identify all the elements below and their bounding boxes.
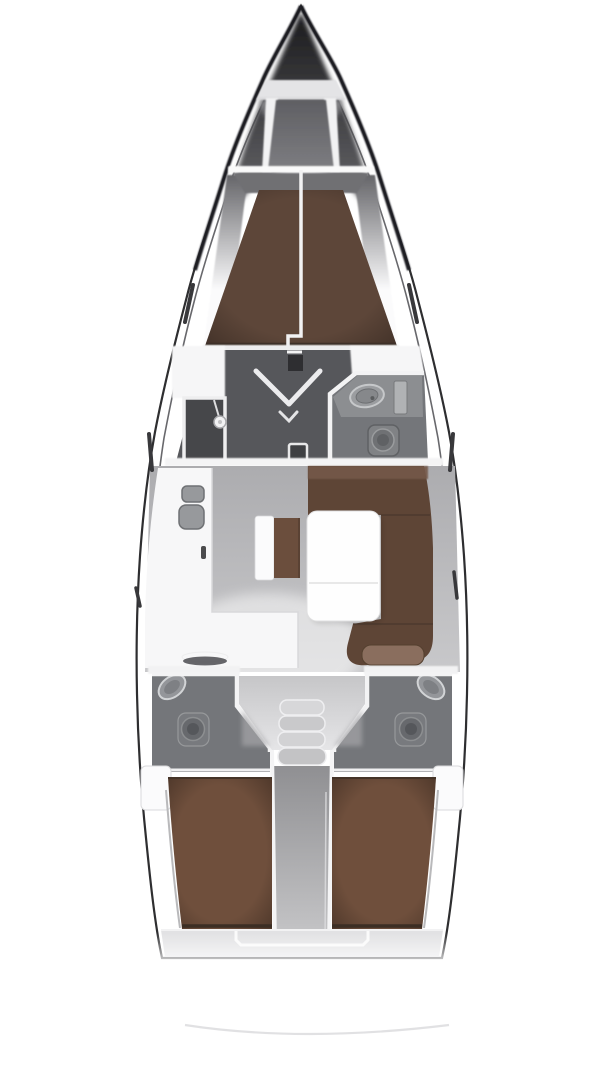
toilet	[368, 425, 399, 456]
port-cabinet	[172, 346, 225, 398]
mast-base	[288, 355, 303, 371]
head-cabinet	[394, 381, 407, 414]
aft-cabin-starboard	[332, 777, 438, 929]
aft-berth-port-shading	[168, 777, 272, 929]
forward-head	[330, 373, 428, 462]
salon-table	[307, 511, 383, 624]
aft-berth-starboard-shading	[332, 777, 436, 929]
salon-bulkhead	[165, 458, 443, 466]
forward-interior	[172, 346, 428, 462]
counter-handle	[201, 546, 206, 559]
bench-white-seat	[255, 516, 274, 580]
double-sink	[179, 486, 204, 529]
engine-compartment	[272, 750, 332, 948]
yacht-floor-plan-page	[0, 0, 608, 1080]
settee-back-band	[308, 466, 428, 479]
engine-box-seam	[325, 792, 326, 945]
starboard-cabinet	[350, 346, 424, 375]
aft-cabin-port	[166, 777, 272, 929]
table-top	[307, 511, 380, 621]
companionway-steps	[278, 700, 326, 765]
settee-pillow	[362, 645, 424, 665]
engine-box	[272, 766, 332, 948]
bow-center-deck	[268, 100, 334, 170]
yacht-floor-plan	[0, 0, 608, 1080]
salon-bench	[255, 516, 300, 580]
bench-brown-seat	[274, 518, 300, 578]
toilet	[395, 713, 426, 746]
forward-shower	[184, 398, 226, 462]
toilet	[178, 713, 209, 746]
